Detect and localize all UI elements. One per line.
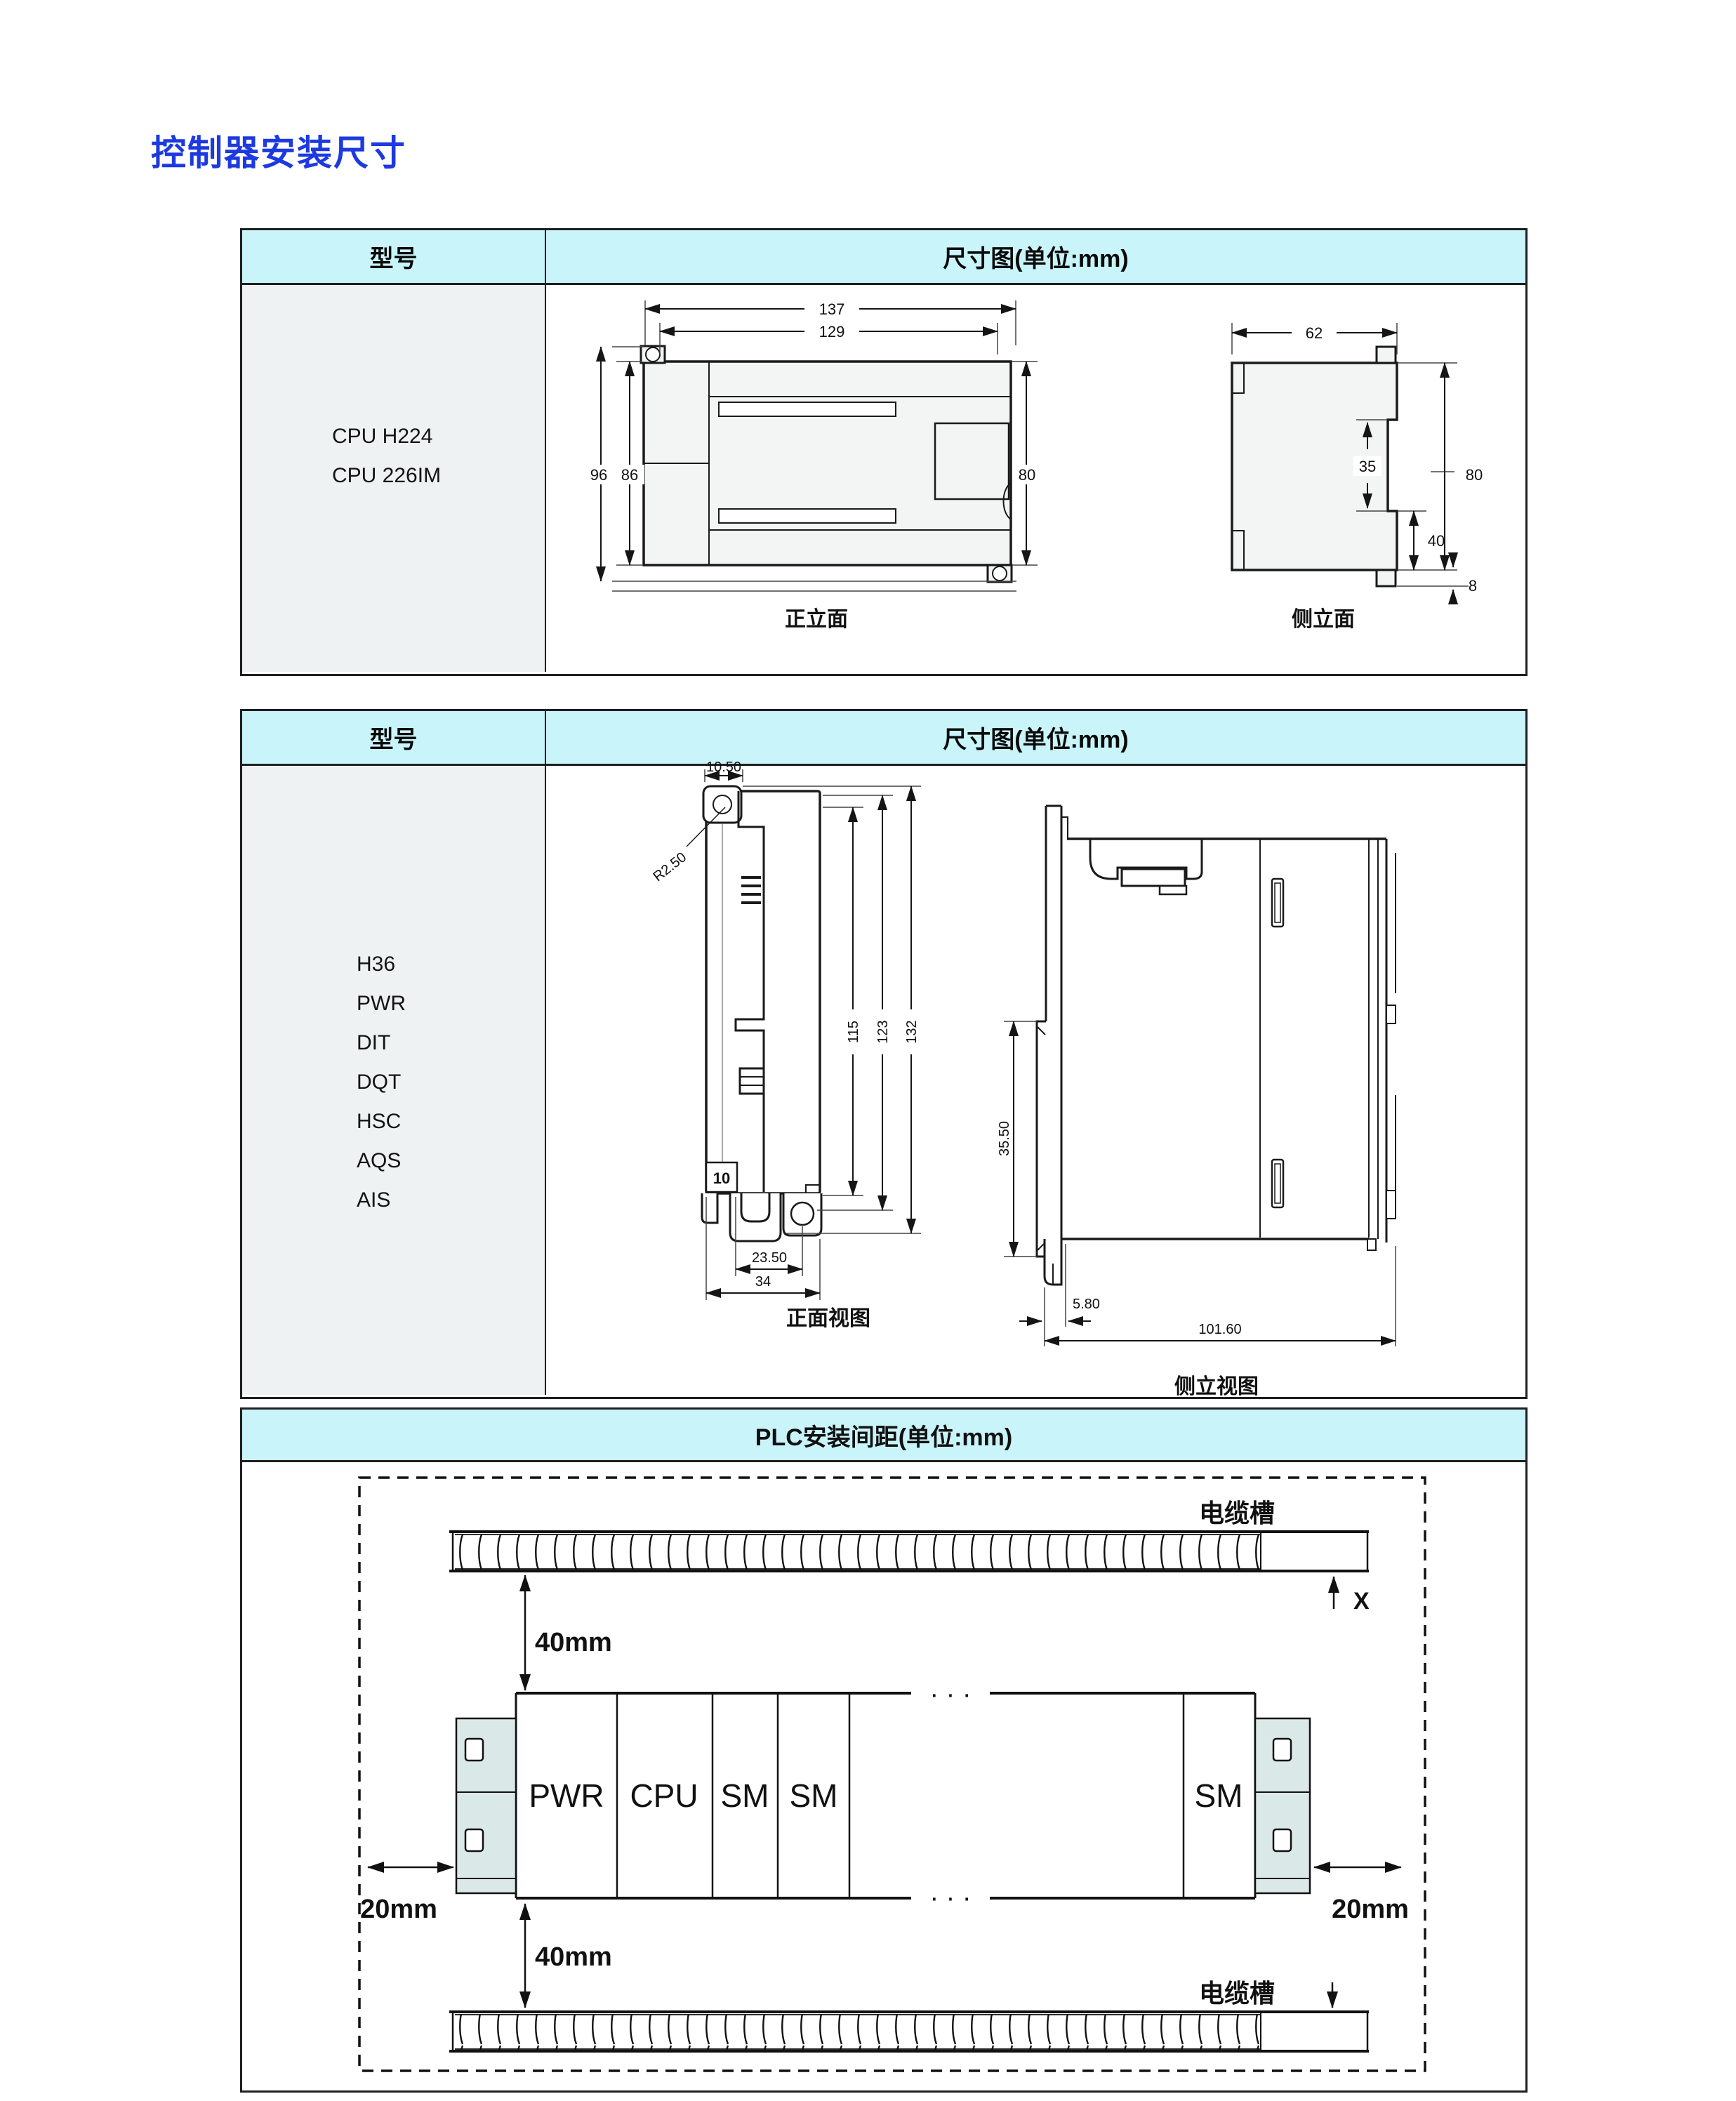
model-name: H36 [357, 945, 545, 984]
table2-header-dim: 尺寸图(单位:mm) [546, 711, 1525, 764]
model-name: DIT [357, 1023, 545, 1063]
table1-header-row: 型号 尺寸图(单位:mm) [242, 230, 1525, 285]
model-name: CPU 226IM [332, 456, 545, 496]
table-module-dimensions: 型号 尺寸图(单位:mm) H36 PWR DIT DQT HSC AQS AI… [240, 709, 1528, 1399]
table-cpu-dimensions: 型号 尺寸图(单位:mm) CPU H224 CPU 226IM [240, 228, 1528, 676]
spacing-header: PLC安装间距(单位:mm) [242, 1410, 1525, 1462]
table1-model-cell: CPU H224 CPU 226IM [242, 285, 546, 672]
plc-spacing-section: PLC安装间距(单位:mm) [240, 1407, 1528, 2093]
table2-body-row: H36 PWR DIT DQT HSC AQS AIS [242, 766, 1525, 1395]
table1-header-dim: 尺寸图(单位:mm) [546, 230, 1525, 283]
table1-dimension-cell [546, 285, 1525, 672]
document-page: 控制器安装尺寸 型号 尺寸图(单位:mm) CPU H224 CPU 226IM [0, 0, 1736, 2101]
model-name: CPU H224 [332, 417, 545, 456]
model-name: HSC [357, 1102, 545, 1141]
model-name: AQS [357, 1141, 545, 1181]
table1-header-model: 型号 [242, 230, 546, 283]
table2-model-cell: H36 PWR DIT DQT HSC AQS AIS [242, 766, 546, 1395]
page-title: 控制器安装尺寸 [151, 125, 406, 175]
model-name: DQT [357, 1063, 545, 1102]
table2-header-row: 型号 尺寸图(单位:mm) [242, 711, 1525, 766]
model-name: PWR [357, 984, 545, 1023]
model-name: AIS [357, 1181, 545, 1220]
table2-header-model: 型号 [242, 711, 546, 764]
table2-dimension-cell [546, 766, 1525, 1395]
table1-body-row: CPU H224 CPU 226IM [242, 285, 1525, 672]
